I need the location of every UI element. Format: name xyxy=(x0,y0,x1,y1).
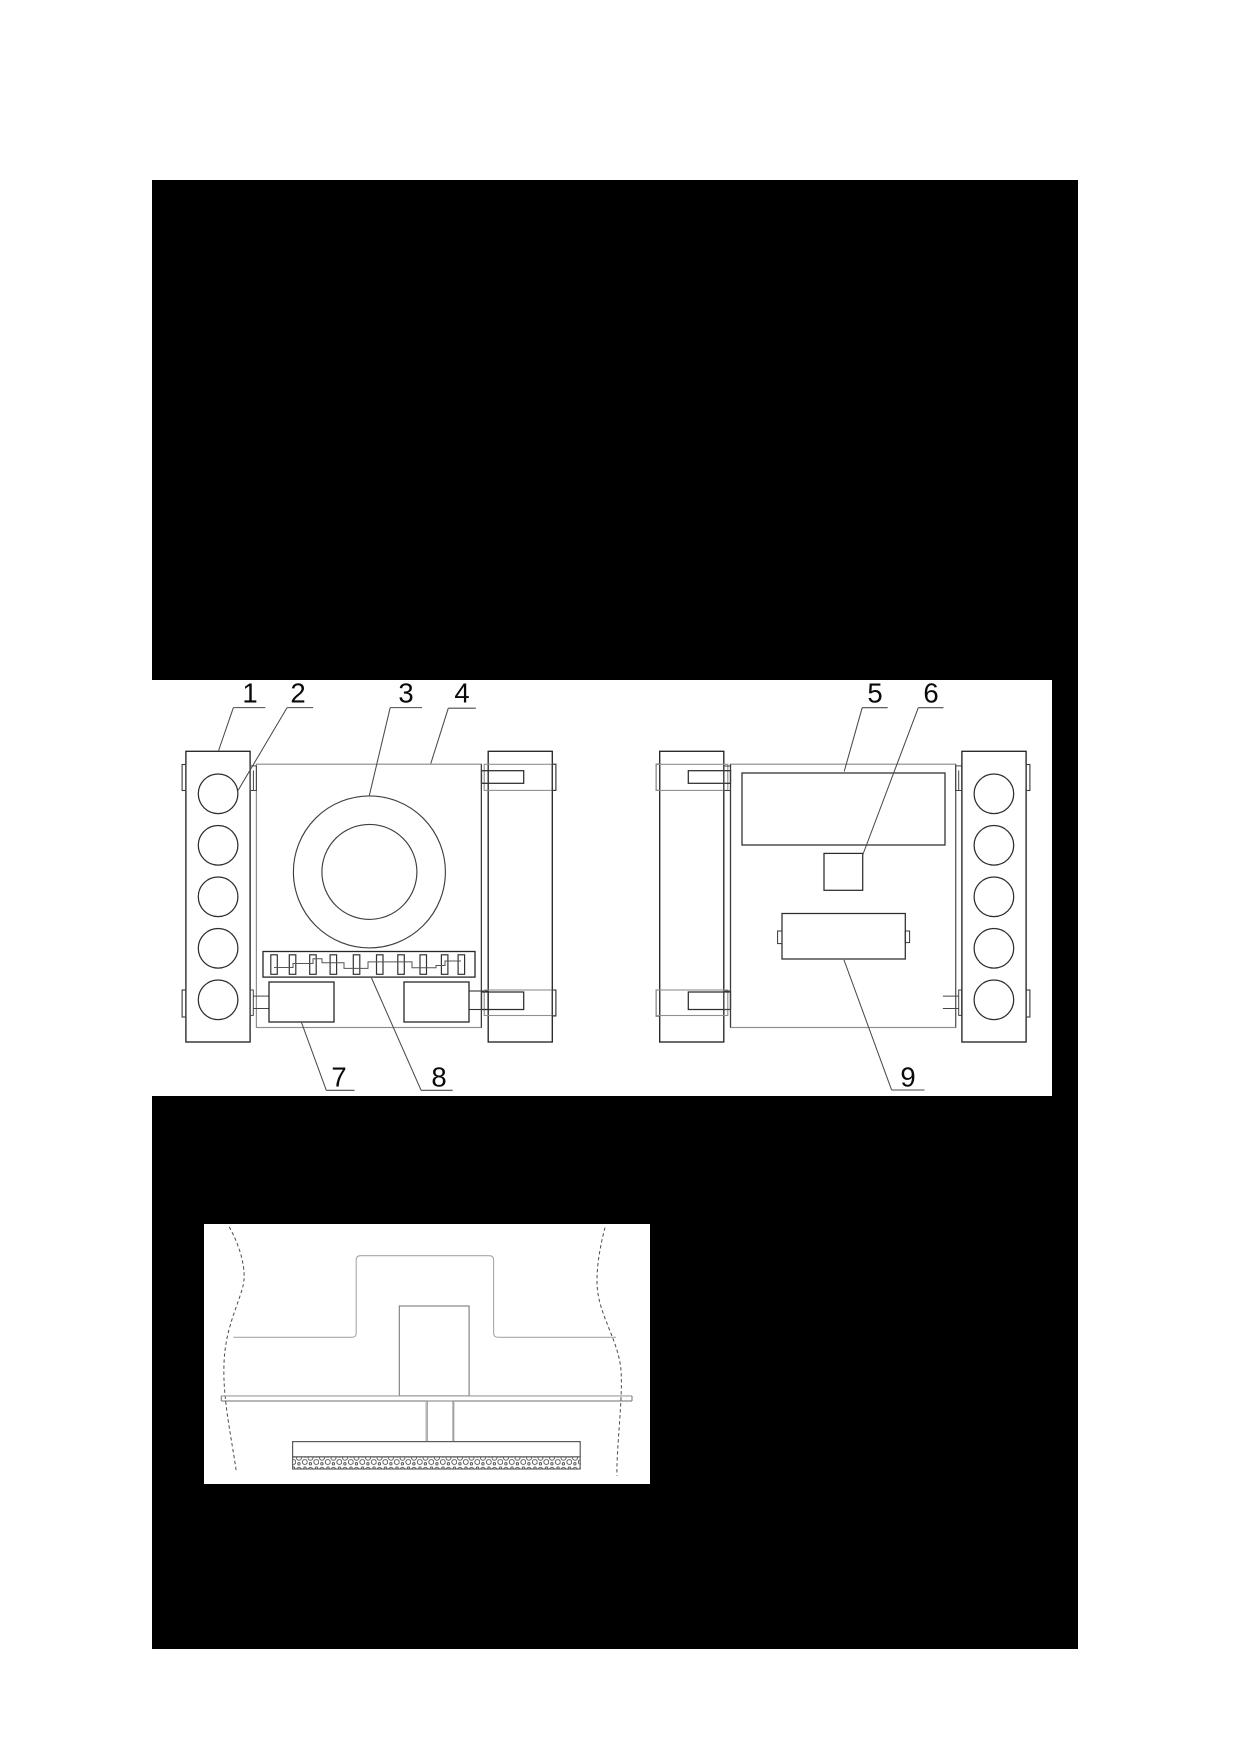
svg-text:5: 5 xyxy=(867,680,882,708)
svg-text:3: 3 xyxy=(398,680,413,708)
svg-text:2: 2 xyxy=(290,680,305,708)
svg-text:4: 4 xyxy=(454,680,469,708)
svg-text:1: 1 xyxy=(242,680,257,708)
svg-text:6: 6 xyxy=(923,680,938,708)
svg-text:8: 8 xyxy=(431,1061,446,1092)
svg-text:7: 7 xyxy=(331,1061,346,1092)
svg-text:9: 9 xyxy=(900,1061,915,1092)
